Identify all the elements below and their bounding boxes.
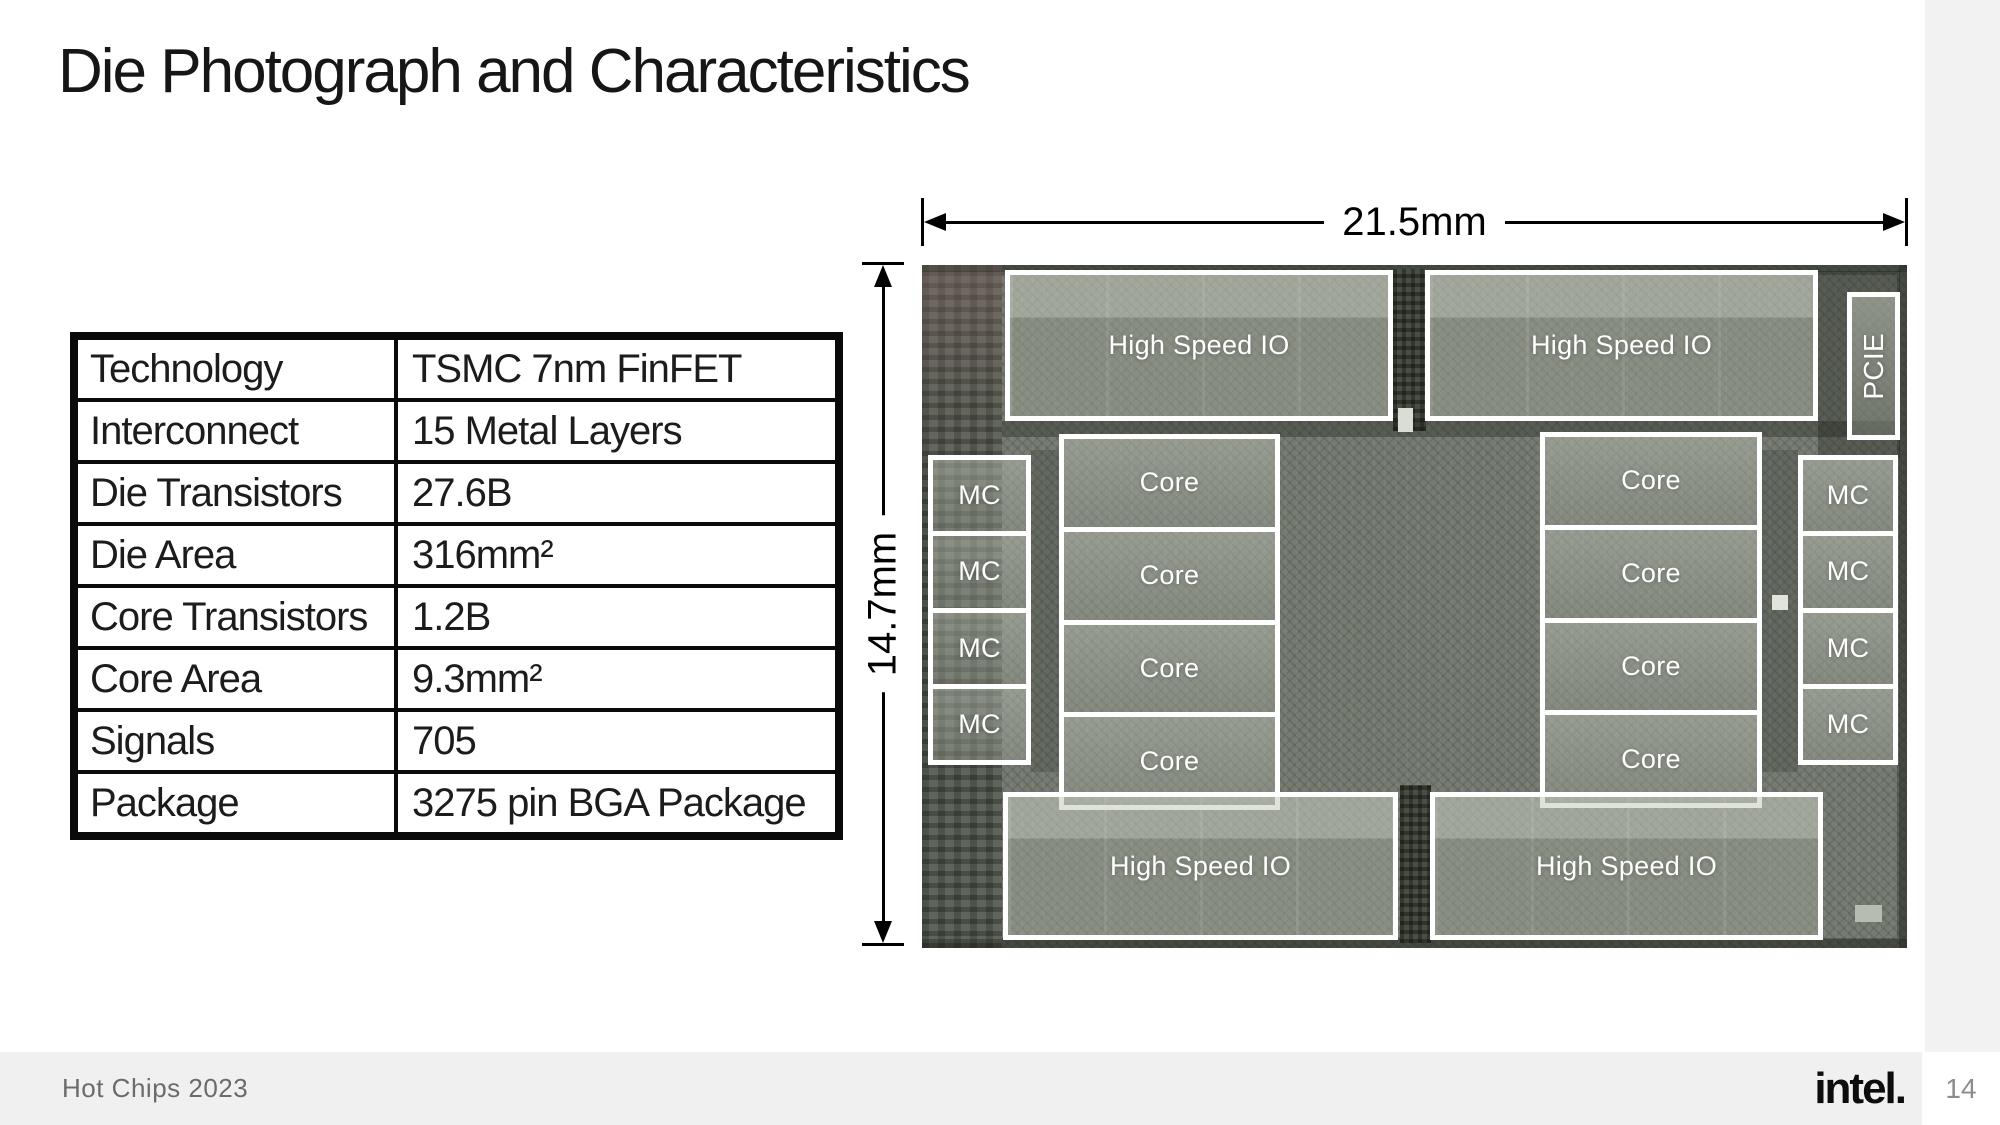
spec-label: Die Area bbox=[78, 526, 394, 584]
footer-event-label: Hot Chips 2023 bbox=[62, 1073, 248, 1104]
table-row: Die Area 316mm² bbox=[78, 522, 835, 584]
arrowhead-right-icon bbox=[1883, 213, 1905, 231]
arrowhead-down-icon bbox=[874, 921, 892, 943]
region-label: High Speed IO bbox=[1110, 851, 1291, 882]
die-height-label: 14.7mm bbox=[853, 516, 914, 693]
table-row: Interconnect 15 Metal Layers bbox=[78, 398, 835, 460]
region-mc: MC bbox=[1803, 608, 1893, 684]
spec-value: 705 bbox=[394, 712, 835, 770]
dimension-line bbox=[1505, 221, 1883, 224]
slide-canvas: Die Photograph and Characteristics Techn… bbox=[0, 0, 2000, 1125]
region-core: Core bbox=[1545, 525, 1757, 618]
region-high-speed-io-bottom-right: High Speed IO bbox=[1430, 792, 1823, 940]
dimension-tick-right bbox=[1905, 198, 1908, 246]
region-high-speed-io-top-left: High Speed IO bbox=[1005, 270, 1393, 421]
die-width-label: 21.5mm bbox=[1324, 200, 1505, 245]
arrowhead-up-icon bbox=[874, 265, 892, 287]
region-label: High Speed IO bbox=[1536, 851, 1717, 882]
spec-label: Signals bbox=[78, 712, 394, 770]
mc-column-left: MC MC MC MC bbox=[928, 455, 1031, 765]
slide-title: Die Photograph and Characteristics bbox=[58, 36, 969, 107]
region-mc: MC bbox=[933, 684, 1026, 760]
characteristics-table: Technology TSMC 7nm FinFET Interconnect … bbox=[70, 332, 843, 840]
region-core: Core bbox=[1545, 710, 1757, 803]
region-mc: MC bbox=[933, 608, 1026, 684]
die-height-dimension: 14.7mm bbox=[860, 262, 906, 946]
spec-label: Interconnect bbox=[78, 402, 394, 460]
page-number: 14 bbox=[1945, 1073, 1976, 1105]
spec-label: Technology bbox=[78, 340, 394, 398]
spec-label: Core Transistors bbox=[78, 588, 394, 646]
region-mc: MC bbox=[1803, 460, 1893, 531]
core-column-right: Core Core Core Core bbox=[1540, 432, 1762, 808]
spec-value: 27.6B bbox=[394, 464, 835, 522]
intel-logo: intel. bbox=[1814, 1064, 1905, 1114]
region-mc: MC bbox=[1803, 684, 1893, 760]
region-high-speed-io-bottom-left: High Speed IO bbox=[1003, 792, 1398, 940]
region-core: Core bbox=[1064, 527, 1275, 620]
region-high-speed-io-top-right: High Speed IO bbox=[1425, 270, 1818, 421]
spec-value: 316mm² bbox=[394, 526, 835, 584]
page-number-cell: 14 bbox=[1922, 1052, 2000, 1125]
spec-value: TSMC 7nm FinFET bbox=[394, 340, 835, 398]
die-gap bbox=[1393, 269, 1426, 431]
region-pcie: PCIE bbox=[1847, 292, 1900, 440]
spec-value: 3275 pin BGA Package bbox=[394, 774, 835, 832]
region-label: PCIE bbox=[1858, 333, 1890, 400]
region-mc: MC bbox=[933, 531, 1026, 607]
core-column-left: Core Core Core Core bbox=[1059, 434, 1280, 810]
spec-label: Package bbox=[78, 774, 394, 832]
region-core: Core bbox=[1545, 437, 1757, 525]
region-label: High Speed IO bbox=[1531, 330, 1712, 361]
region-core: Core bbox=[1545, 618, 1757, 711]
table-row: Die Transistors 27.6B bbox=[78, 460, 835, 522]
region-mc: MC bbox=[1803, 531, 1893, 607]
table-row: Core Transistors 1.2B bbox=[78, 584, 835, 646]
region-core: Core bbox=[1064, 439, 1275, 527]
die-photograph: High Speed IO High Speed IO PCIE MC MC M… bbox=[922, 265, 1907, 948]
region-mc: MC bbox=[933, 460, 1026, 531]
dimension-line bbox=[946, 221, 1324, 224]
region-core: Core bbox=[1064, 620, 1275, 713]
spec-value: 1.2B bbox=[394, 588, 835, 646]
table-row: Core Area 9.3mm² bbox=[78, 646, 835, 708]
die-width-dimension: 21.5mm bbox=[921, 198, 1908, 246]
spec-label: Core Area bbox=[78, 650, 394, 708]
spec-value: 9.3mm² bbox=[394, 650, 835, 708]
region-label: High Speed IO bbox=[1108, 330, 1289, 361]
arrowhead-left-icon bbox=[924, 213, 946, 231]
footer-band: Hot Chips 2023 intel. bbox=[0, 1052, 1922, 1125]
mc-column-right: MC MC MC MC bbox=[1798, 455, 1898, 765]
right-margin-strip bbox=[1925, 0, 2000, 1052]
table-row: Signals 705 bbox=[78, 708, 835, 770]
spec-label: Die Transistors bbox=[78, 464, 394, 522]
table-row: Package 3275 pin BGA Package bbox=[78, 770, 835, 832]
dimension-cap-bottom bbox=[862, 943, 904, 946]
spec-value: 15 Metal Layers bbox=[394, 402, 835, 460]
table-row: Technology TSMC 7nm FinFET bbox=[78, 340, 835, 398]
die-gap bbox=[1400, 785, 1431, 943]
